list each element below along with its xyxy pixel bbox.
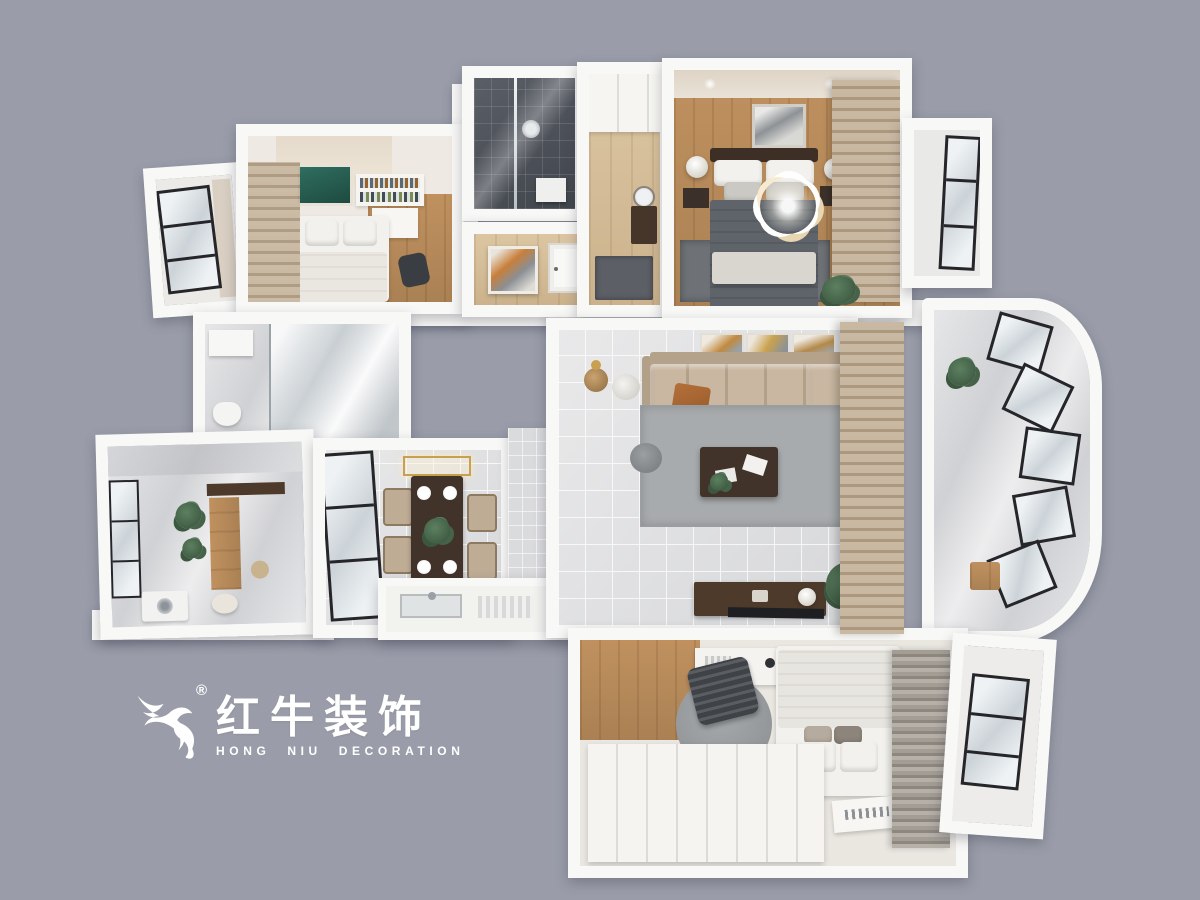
window-bar bbox=[330, 557, 378, 563]
hallway-artwork bbox=[488, 246, 538, 294]
table-plant bbox=[710, 473, 728, 491]
console-lamp bbox=[798, 588, 816, 606]
faucet bbox=[428, 592, 436, 600]
room-master-bedroom bbox=[662, 58, 912, 318]
plate bbox=[417, 560, 431, 574]
floorplan-scene: ® 红牛装饰 HONG NIU DECORATION bbox=[0, 0, 1200, 900]
room-master-balcony bbox=[902, 118, 992, 288]
balcony-window-pane bbox=[1012, 486, 1076, 547]
pillow bbox=[840, 742, 878, 772]
bull-logo-icon bbox=[128, 688, 210, 766]
pillow bbox=[305, 220, 339, 246]
balcony-window bbox=[961, 673, 1030, 790]
table-centerpiece bbox=[424, 518, 450, 544]
toilet bbox=[213, 402, 241, 426]
duvet bbox=[778, 650, 898, 728]
window-bar bbox=[326, 503, 374, 509]
utility-window bbox=[109, 480, 142, 599]
dining-chair bbox=[467, 542, 497, 580]
washer-door bbox=[157, 598, 173, 614]
master-artwork bbox=[752, 104, 806, 148]
vanity bbox=[209, 330, 253, 356]
logo-name-cn: 红牛装饰 bbox=[216, 696, 465, 740]
bed-bench bbox=[712, 252, 816, 284]
kitchen-sink bbox=[400, 594, 462, 618]
glass-shower bbox=[269, 324, 401, 442]
washing-machine bbox=[141, 591, 188, 622]
curtain-left bbox=[248, 162, 300, 302]
dining-chair bbox=[383, 488, 413, 526]
room-living bbox=[546, 318, 858, 638]
spotlight bbox=[704, 78, 716, 90]
logo-name-en: HONG NIU DECORATION bbox=[216, 744, 465, 758]
ottoman bbox=[630, 443, 662, 473]
balcony-window-pane bbox=[1019, 426, 1082, 485]
window-bar bbox=[167, 254, 215, 263]
duvet bbox=[299, 252, 387, 302]
room-balcony-curved bbox=[922, 298, 1102, 643]
television bbox=[728, 607, 824, 619]
dining-chair bbox=[467, 494, 497, 532]
entry-dresser bbox=[631, 206, 657, 244]
room-entry bbox=[577, 62, 672, 317]
room-utility bbox=[95, 429, 318, 640]
nightstand bbox=[683, 188, 709, 208]
side-table bbox=[612, 374, 640, 400]
utility-wall-face bbox=[108, 441, 303, 476]
table-book bbox=[742, 454, 768, 476]
dish-rack bbox=[478, 596, 534, 618]
console-clock bbox=[752, 590, 768, 602]
logo-text-block: 红牛装饰 HONG NIU DECORATION bbox=[216, 696, 465, 758]
dining-chandelier bbox=[403, 456, 471, 476]
door-handle bbox=[554, 267, 558, 271]
vanity-mirror bbox=[633, 186, 655, 208]
window-bar bbox=[946, 178, 976, 183]
window-bar bbox=[163, 220, 211, 229]
entry-rug bbox=[595, 256, 653, 300]
bed-small bbox=[297, 216, 389, 302]
room-bedroom-bottom bbox=[568, 628, 968, 878]
gold-vase bbox=[591, 360, 601, 370]
entry-wardrobe bbox=[589, 74, 660, 132]
window-bar bbox=[967, 750, 1019, 758]
utility-cabinet bbox=[209, 497, 241, 590]
mat-pattern bbox=[845, 806, 890, 820]
green-artwork bbox=[295, 164, 353, 206]
dining-table bbox=[411, 476, 463, 588]
book-row bbox=[360, 178, 420, 188]
window-bar bbox=[112, 520, 138, 523]
plate bbox=[417, 486, 431, 500]
master-curtain bbox=[832, 80, 900, 302]
plate bbox=[443, 560, 457, 574]
shower-head bbox=[522, 120, 540, 138]
tv-console bbox=[694, 582, 826, 616]
window-bar bbox=[971, 712, 1023, 720]
bedside-lamp bbox=[686, 156, 708, 178]
room-balcony-bottom bbox=[939, 633, 1057, 840]
chandelier bbox=[760, 178, 816, 234]
plate bbox=[443, 486, 457, 500]
balcony-window bbox=[939, 135, 982, 271]
dining-chair bbox=[383, 536, 413, 574]
living-curtain bbox=[840, 322, 904, 634]
book-row bbox=[360, 192, 420, 202]
coffee-table bbox=[700, 447, 778, 497]
utility-counter bbox=[207, 482, 285, 496]
registered-mark: ® bbox=[196, 682, 207, 699]
window-bar bbox=[113, 560, 139, 563]
pillow bbox=[724, 182, 762, 202]
wardrobe bbox=[588, 744, 824, 862]
room-shower bbox=[462, 66, 587, 221]
window-bar bbox=[944, 224, 974, 229]
desk-lamp bbox=[765, 658, 775, 668]
brand-logo: ® 红牛装饰 HONG NIU DECORATION bbox=[128, 682, 468, 792]
shower-bench bbox=[536, 178, 566, 202]
pillow bbox=[343, 220, 377, 246]
storage-crate bbox=[970, 562, 1000, 590]
side-table bbox=[584, 368, 608, 392]
bookshelf bbox=[356, 174, 424, 206]
room-bedroom-small bbox=[236, 124, 464, 314]
